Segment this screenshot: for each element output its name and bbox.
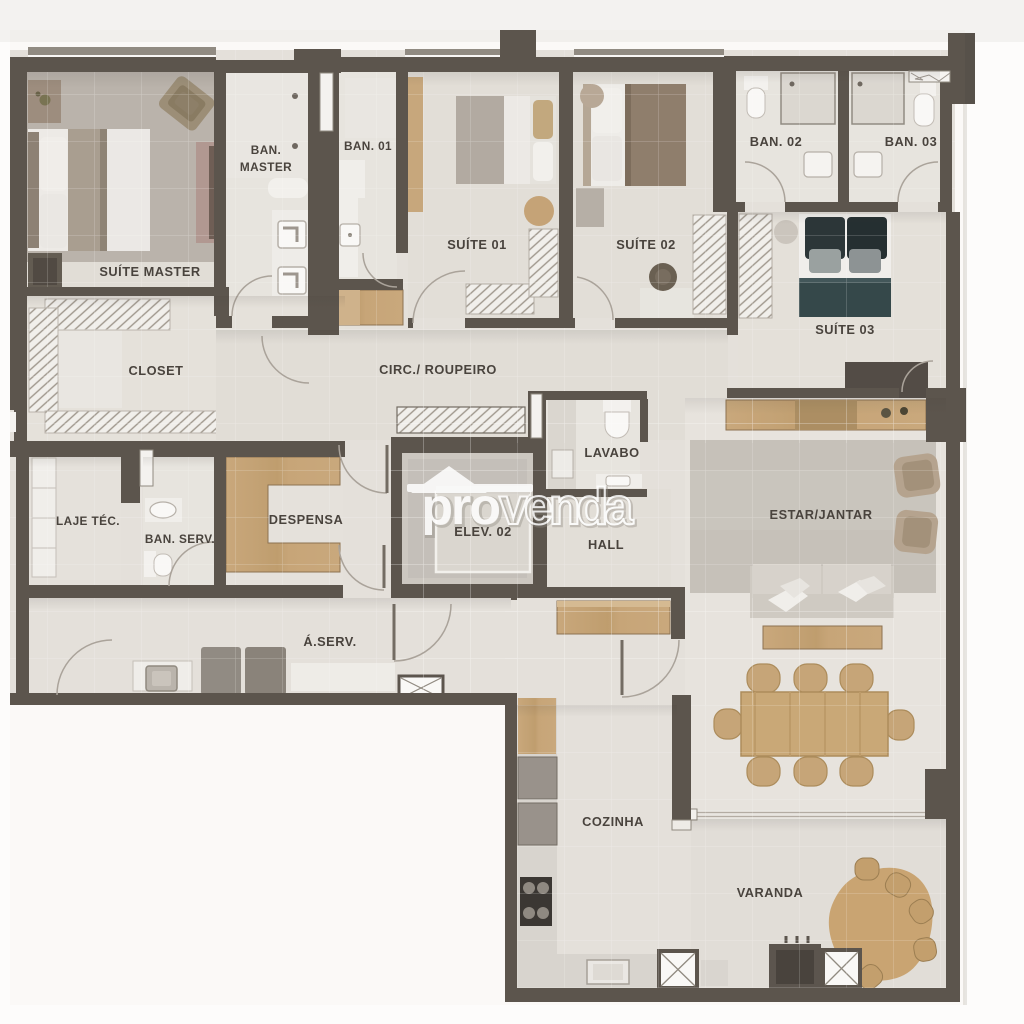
svg-text:pro: pro — [421, 478, 499, 536]
svg-text:venda: venda — [499, 478, 634, 536]
